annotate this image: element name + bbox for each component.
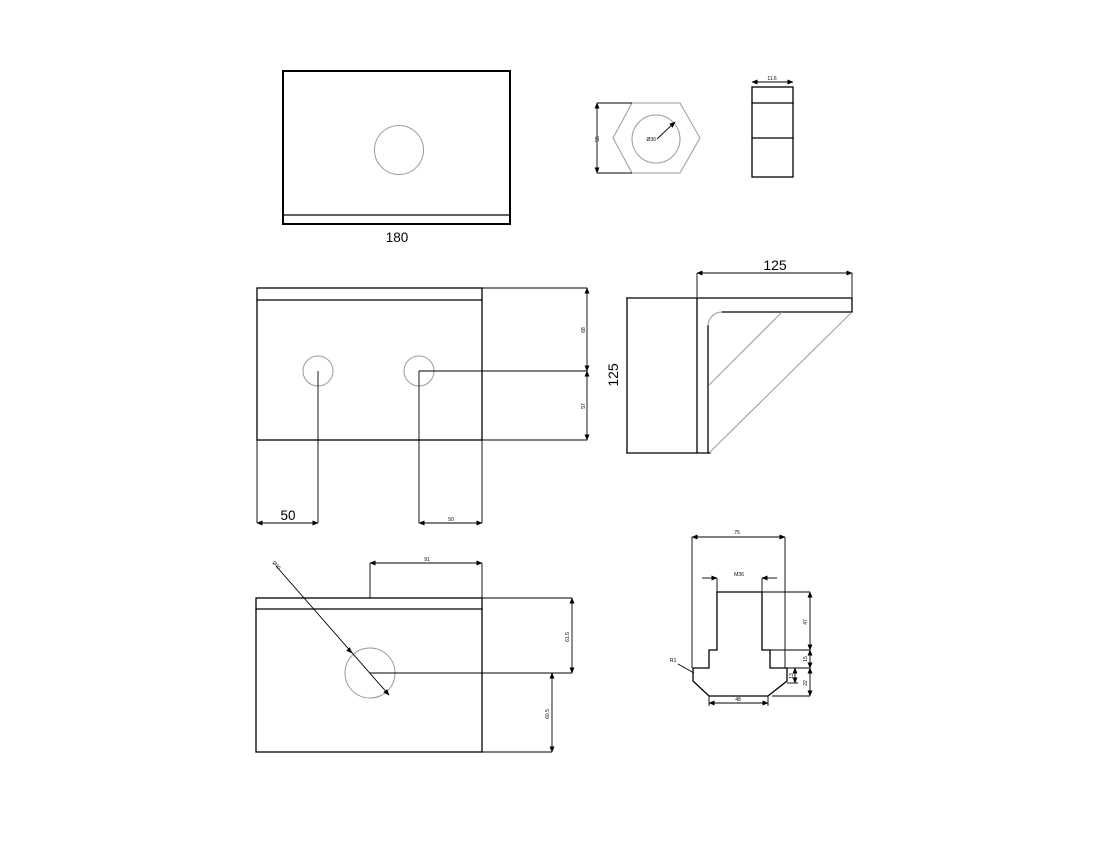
dim-edge-lower: 57	[581, 403, 587, 409]
gusset-inner-diagonal	[709, 312, 782, 385]
bracket-plan-outline	[257, 288, 482, 440]
dim-across-flats: 55	[595, 136, 601, 142]
dim-nut-width: 11.6	[767, 76, 777, 82]
dim-boss-width: 75	[734, 530, 740, 536]
dim-fillet: R1	[670, 658, 677, 664]
bore-leader-line	[657, 122, 675, 139]
plate-hole-circle	[375, 126, 424, 175]
dim-slot-width: 91	[424, 557, 430, 563]
dim-nut-bore: Ø36	[647, 137, 657, 143]
drawing-sheet: 180 Ø36 55 11.6 68 57	[0, 0, 1107, 841]
view-hex-nut-front: Ø36 55	[595, 103, 700, 173]
dim-base-width: 48	[735, 697, 741, 703]
hole-dia-leader-line	[276, 566, 389, 695]
dim-plate-width: 180	[386, 230, 409, 245]
fillet-arc	[708, 312, 722, 326]
boss-profile-outline	[693, 592, 787, 696]
view-plate-front: 91 61.5 60.5 Ø40	[256, 557, 572, 752]
view-bracket-side: 125 125	[605, 257, 852, 453]
cad-drawing-canvas: 180 Ø36 55 11.6 68 57	[0, 0, 1107, 841]
dim-hole-dia: Ø40	[271, 560, 282, 571]
dim-base-height: 22	[803, 680, 809, 686]
dim-lower-height: 60.5	[545, 709, 551, 719]
view-hex-nut-side: 11.6	[752, 76, 793, 177]
dim-thread: M36	[734, 572, 744, 578]
plate-front-outline	[256, 598, 482, 752]
dim-hole-offset-left: 50	[280, 508, 295, 523]
dim-bracket-depth: 125	[763, 257, 787, 273]
plate-outline	[283, 71, 510, 224]
gusset-outer-diagonal	[710, 312, 852, 452]
nut-bore-circle	[632, 115, 680, 163]
view-boss-section: 75 M36 R1 48 47 15 22 13	[670, 530, 810, 706]
dim-step-height: 15	[803, 656, 809, 662]
dim-edge-upper: 68	[581, 327, 587, 333]
dim-upper-height: 61.5	[565, 632, 571, 642]
dim-lip: 13	[789, 673, 795, 679]
dim-stem-height: 47	[803, 619, 809, 625]
dim-bracket-height: 125	[605, 363, 621, 387]
dim-hole-offset-right: 50	[448, 517, 454, 523]
view-plate-top: 180	[283, 71, 510, 245]
nut-side-outline	[752, 87, 793, 177]
view-bracket-plan: 68 57 50 50	[257, 288, 587, 523]
